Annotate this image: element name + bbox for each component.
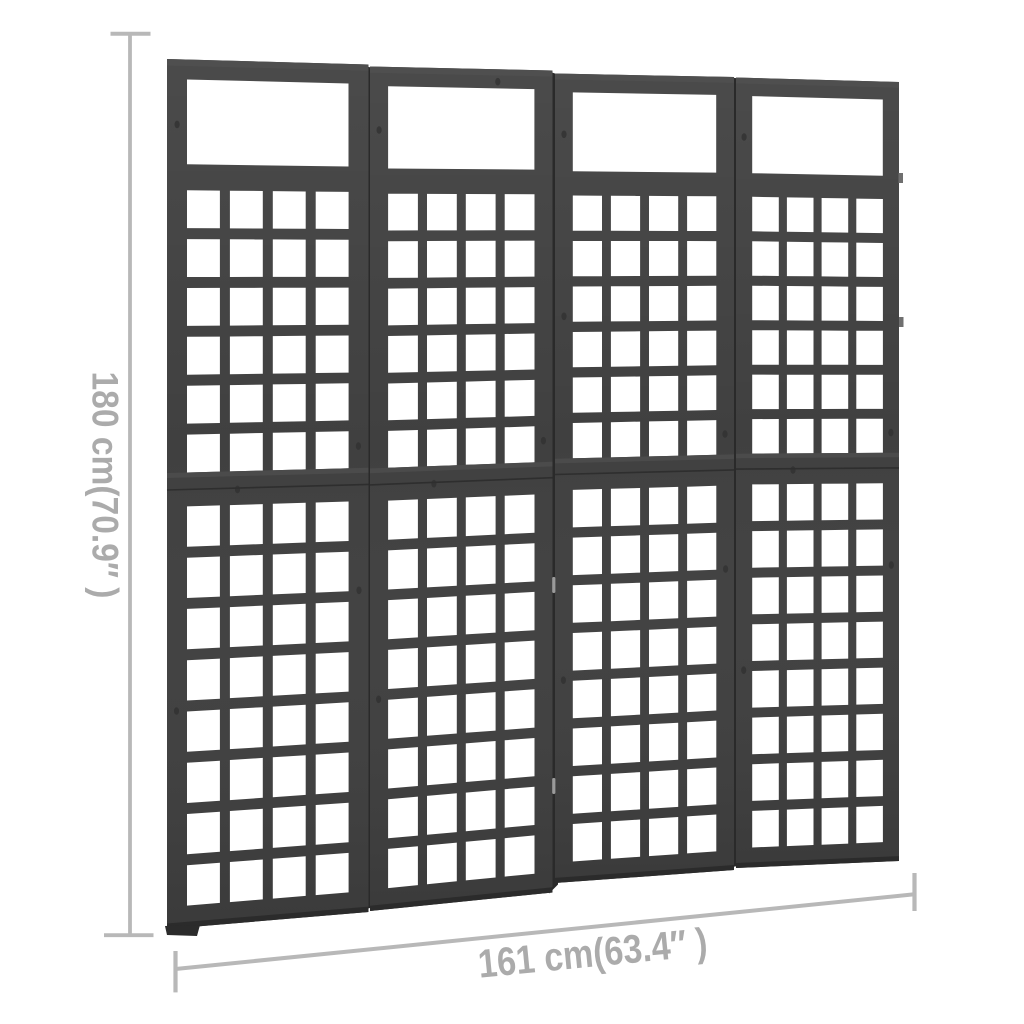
svg-text:180 cm(70.9″ ): 180 cm(70.9″ ): [85, 372, 126, 599]
